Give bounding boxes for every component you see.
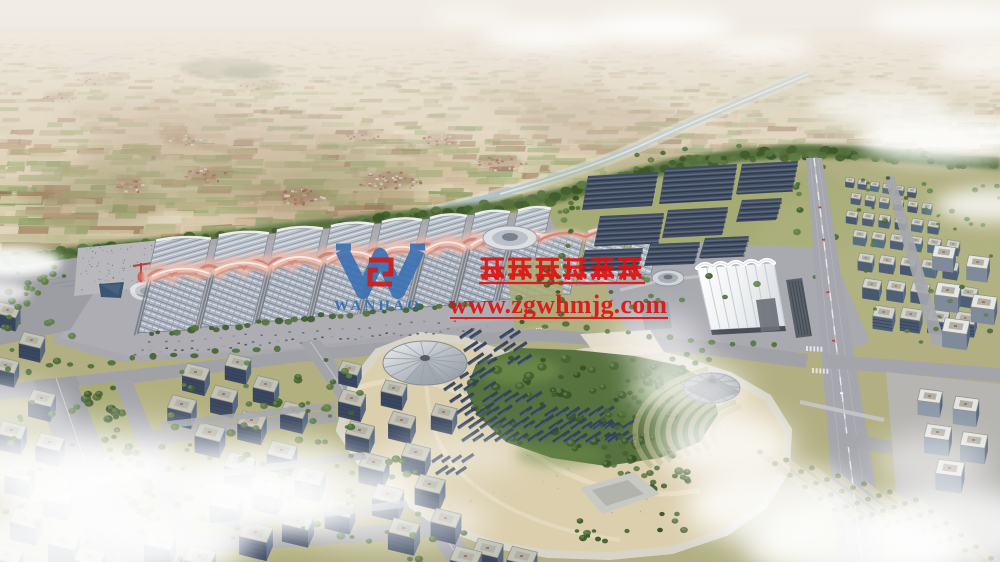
svg-text:WANHAO: WANHAO [334,298,422,314]
svg-text:www.zgwhmjg.com: www.zgwhmjg.com [449,290,667,319]
